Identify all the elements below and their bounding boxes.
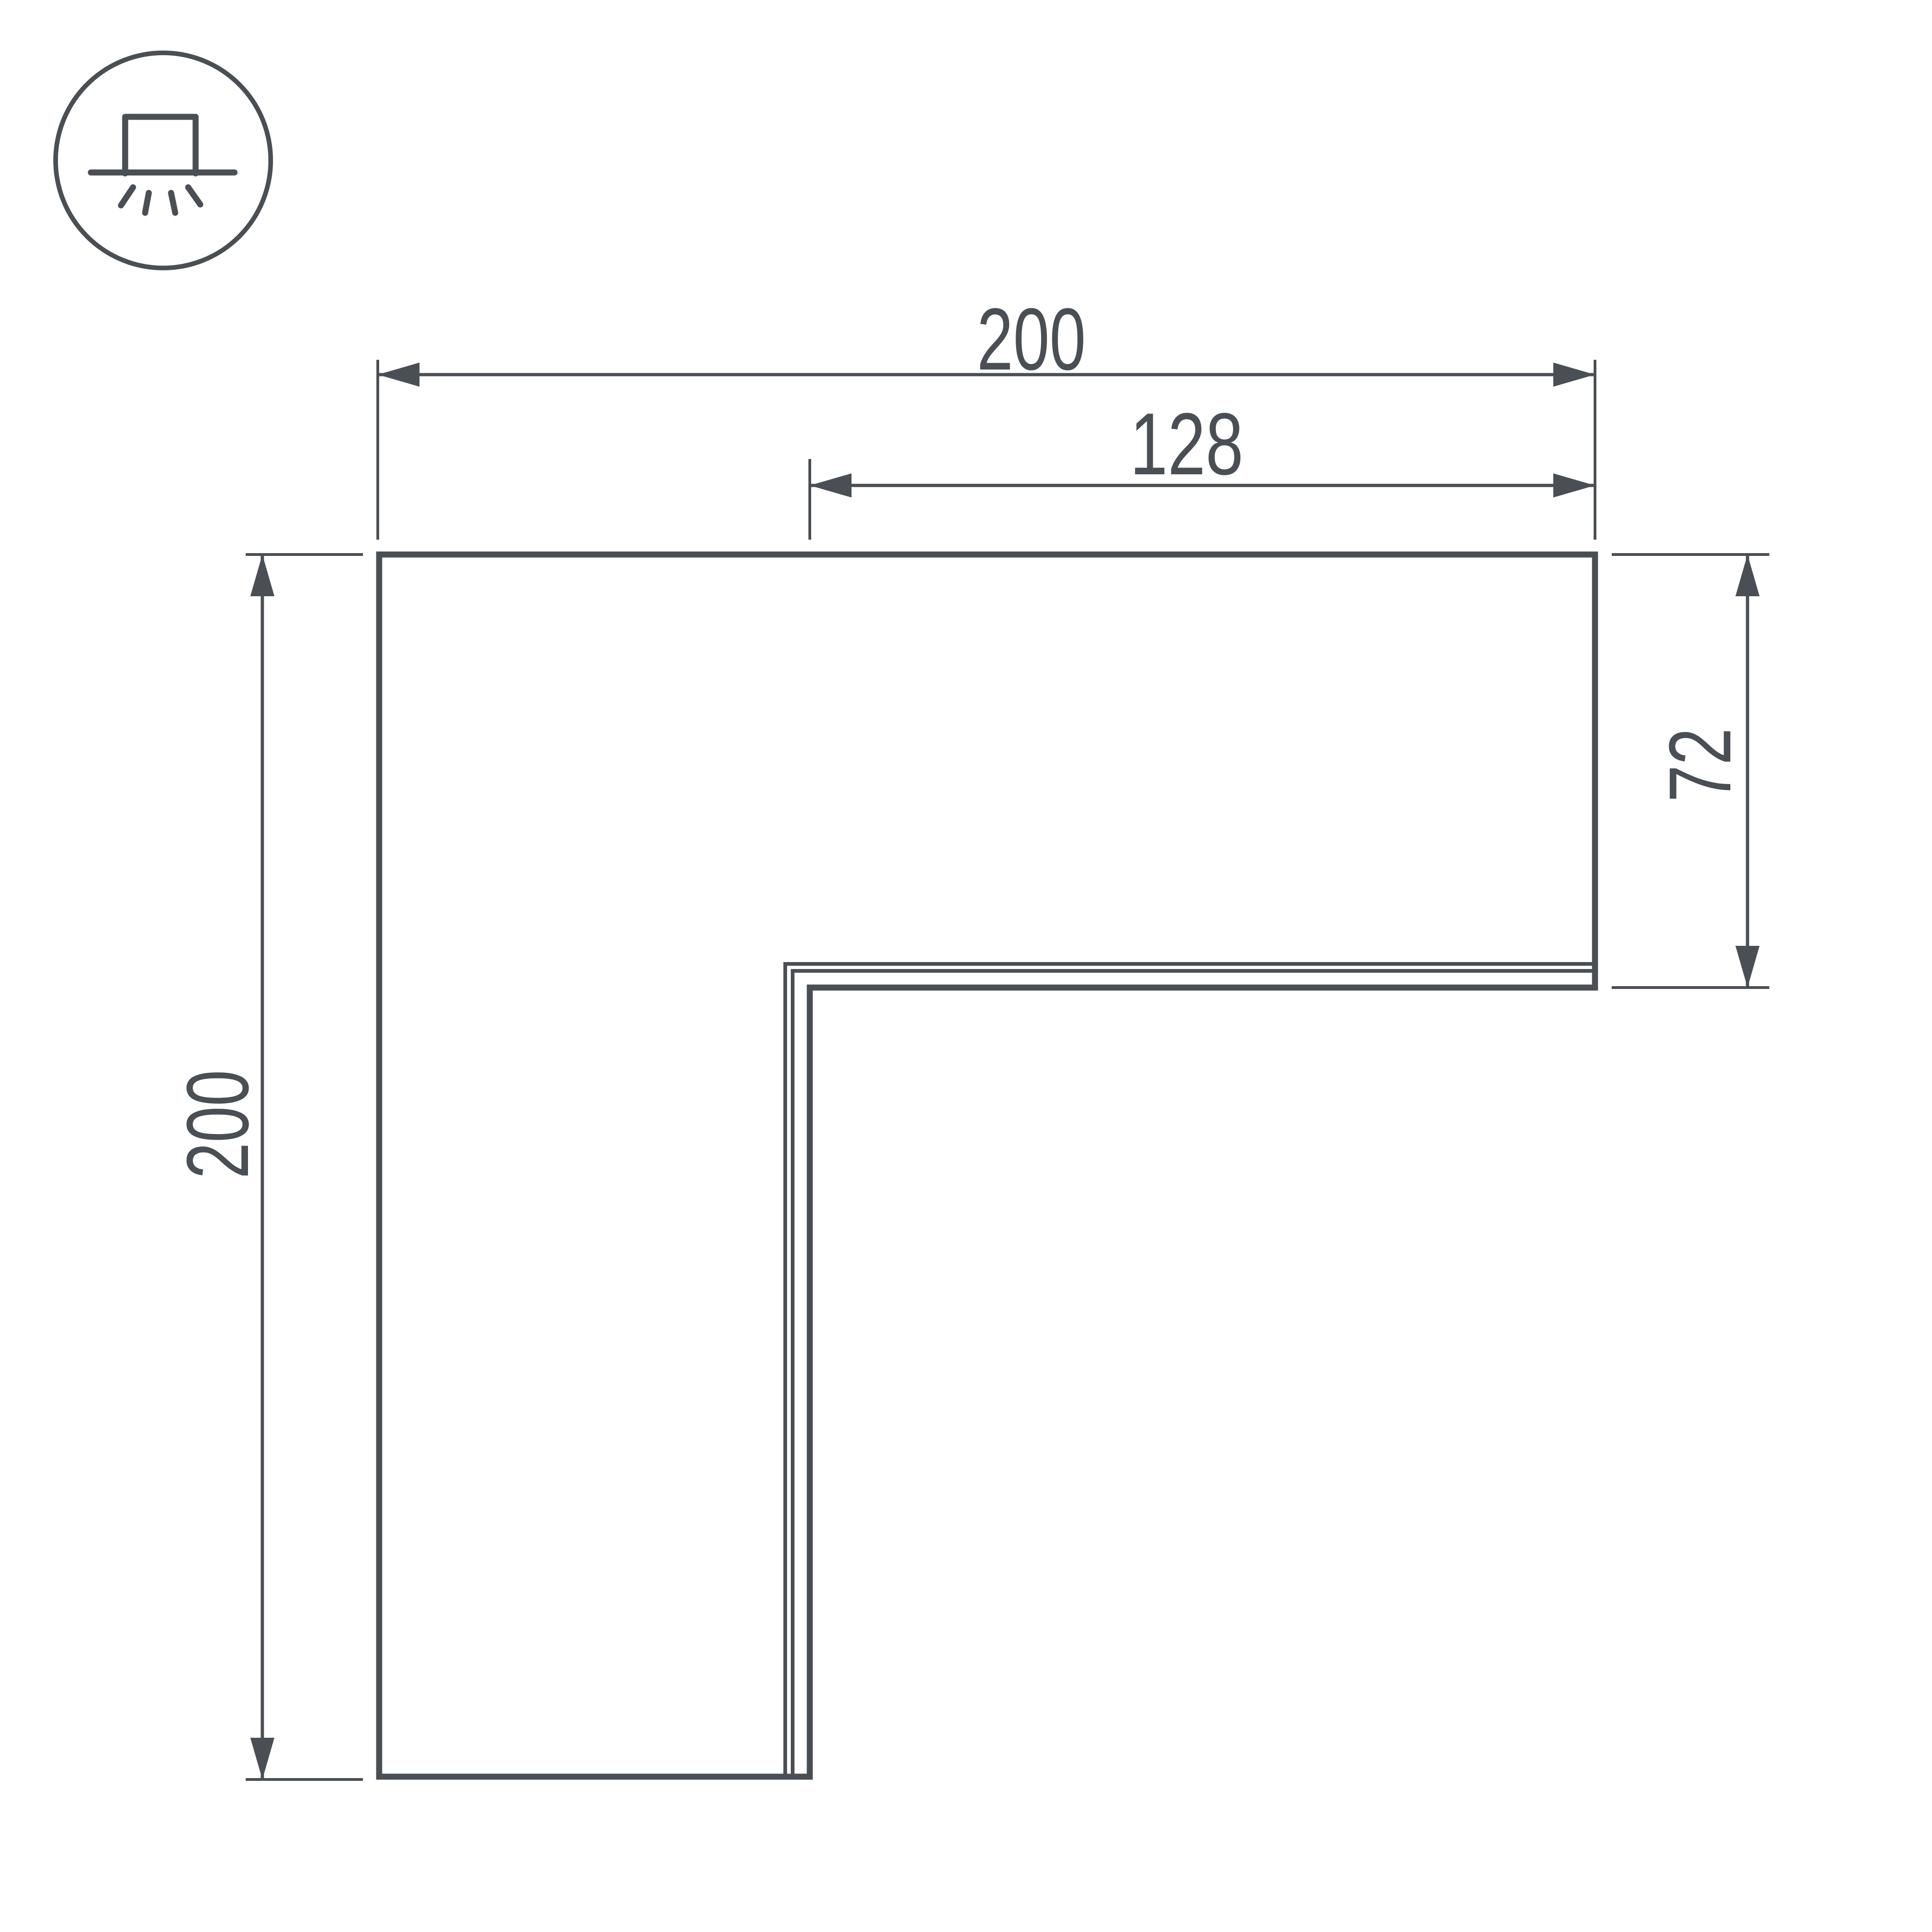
arrow-left-icon [810, 473, 852, 497]
dim-left-height-label: 200 [169, 1070, 267, 1179]
arrow-right-icon [1553, 363, 1595, 387]
dim-left-height: 200 [169, 555, 363, 1779]
technical-drawing-canvas: 200 128 200 72 [0, 0, 1932, 1932]
icon-light-ray [188, 187, 200, 204]
dim-top-width: 200 [378, 290, 1595, 540]
arrow-up-icon [250, 555, 274, 596]
icon-light-ray [145, 193, 149, 213]
dim-right-height: 72 [1612, 555, 1769, 988]
arrow-right-icon [1553, 473, 1595, 497]
profile-seam-line-outer [785, 964, 1595, 1777]
icon-light-ray [121, 187, 133, 205]
dim-inner-width-label: 128 [1130, 395, 1244, 493]
dim-right-height-label: 72 [1651, 728, 1749, 802]
corner-profile [379, 555, 1595, 1777]
arrow-up-icon [1735, 555, 1760, 596]
profile-outline [379, 555, 1595, 1777]
icon-light-ray [171, 193, 175, 213]
dim-inner-width: 128 [810, 395, 1595, 540]
arrow-down-icon [1735, 946, 1760, 988]
arrow-left-icon [378, 363, 419, 387]
arrow-down-icon [250, 1738, 274, 1779]
dim-top-width-label: 200 [977, 290, 1086, 389]
profile-seam-line-inner [793, 971, 1595, 1777]
icon-circle [56, 53, 271, 268]
icon-fixture-box [125, 117, 196, 173]
surface-mount-light-icon [56, 53, 271, 268]
